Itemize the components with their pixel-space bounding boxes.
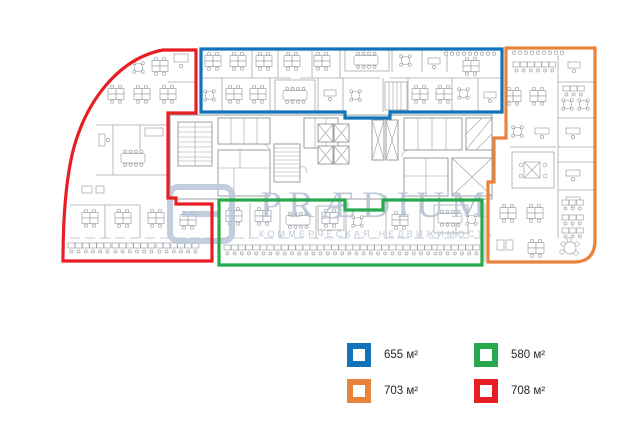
legend-item-red: 708 м²	[474, 379, 601, 403]
floor-plan-svg: PRÆDIUM КОММЕРЧЕСКАЯ НЕДВИЖИМОСТЬ	[0, 0, 643, 320]
legend-label-blue: 655 м²	[384, 349, 418, 361]
legend-item-green: 580 м²	[474, 343, 601, 367]
legend-swatch-red	[474, 379, 498, 403]
legend-label-orange: 703 м²	[384, 385, 418, 397]
legend-item-orange: 703 м²	[347, 379, 474, 403]
legend-label-red: 708 м²	[511, 385, 545, 397]
legend-swatch-orange	[347, 379, 371, 403]
legend: 655 м² 580 м² 703 м² 708 м²	[347, 343, 601, 403]
floor-plan-screenshot: PRÆDIUM КОММЕРЧЕСКАЯ НЕДВИЖИМОСТЬ 655 м²…	[0, 0, 643, 426]
legend-label-green: 580 м²	[511, 349, 545, 361]
legend-swatch-green	[474, 343, 498, 367]
legend-swatch-blue	[347, 343, 371, 367]
watermark-brand: PRÆDIUM	[260, 185, 492, 226]
legend-item-blue: 655 м²	[347, 343, 474, 367]
watermark-tagline: КОММЕРЧЕСКАЯ НЕДВИЖИМОСТЬ	[259, 229, 495, 240]
